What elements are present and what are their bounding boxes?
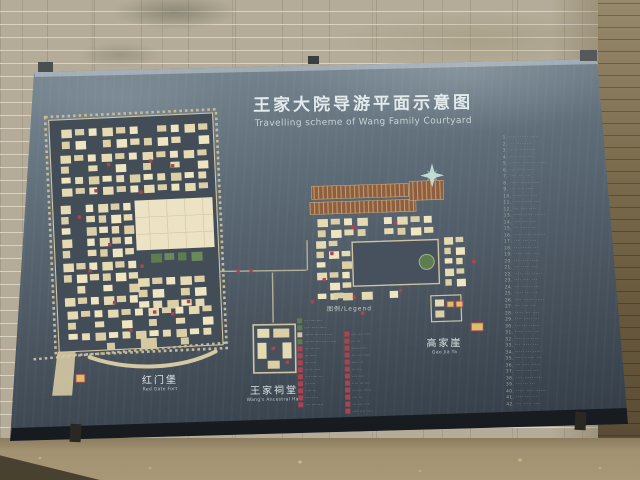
legend-item-text: ···· ··· bbox=[352, 394, 362, 399]
map-content: 王家大院导游平面示意图 Travelling scheme of Wang Fa… bbox=[0, 0, 640, 480]
legend-item-text: ···· ···· ····· bbox=[351, 331, 370, 336]
map-title: 王家大院导游平面示意图 bbox=[230, 88, 496, 117]
legend-item-text: ···· ··· ··· bbox=[304, 346, 319, 351]
mount-bracket-top-center bbox=[308, 56, 319, 64]
legend-item-text: ····· ······ bbox=[351, 345, 366, 350]
sign-board: 王家大院导游平面示意图 Travelling scheme of Wang Fa… bbox=[0, 0, 640, 480]
legend-swatch-icon bbox=[345, 353, 350, 358]
legend-item-text: ··· ··· ···· bbox=[305, 367, 320, 372]
legend-item-text: ···· ····· ··· bbox=[305, 374, 323, 379]
legend-swatch-icon bbox=[298, 368, 303, 373]
legend-swatch-icon bbox=[298, 375, 303, 380]
mount-bracket-top-right bbox=[580, 50, 597, 61]
legend-swatch-icon bbox=[297, 326, 302, 331]
legend-header: 图例/Legend bbox=[327, 303, 372, 313]
mount-tab-bottom-left bbox=[70, 424, 82, 443]
mount-tab-bottom-right bbox=[575, 412, 587, 431]
mount-bracket-top-left bbox=[38, 62, 53, 72]
legend-item-text: ··· ···· ······ bbox=[352, 387, 371, 392]
gao-jia-ya-en: Gao Jia Ya bbox=[415, 350, 475, 356]
legend-swatch-icon bbox=[298, 389, 303, 394]
legend-swatch-icon bbox=[345, 381, 350, 386]
legend-item-text: ····· ···· ····· bbox=[352, 408, 372, 413]
legend-swatch-icon bbox=[344, 346, 349, 351]
index-line: 42. ··· ····· ···· bbox=[506, 401, 601, 409]
legend-column-right: ···· ···· ····· ··· ··· ····· ······ ···… bbox=[344, 330, 405, 415]
gao-jia-ya-cn: 高家崖 bbox=[414, 334, 474, 350]
legend-swatch-icon bbox=[345, 388, 350, 393]
legend-swatch-icon bbox=[345, 409, 350, 414]
legend-swatch-icon bbox=[298, 403, 303, 408]
legend-item-text: ········ ···· ··· ·· ···· bbox=[304, 339, 336, 344]
legend-swatch-icon bbox=[297, 333, 302, 338]
legend-item-text: ···· ···· bbox=[305, 360, 317, 365]
round-pavilion bbox=[419, 254, 434, 269]
legend-swatch-icon bbox=[345, 395, 350, 400]
legend-swatch-icon bbox=[298, 354, 303, 359]
legend-item-text: ····· ··· bbox=[352, 359, 364, 364]
legend-item-text: ··· ··· bbox=[351, 338, 360, 343]
legend-swatch-icon bbox=[298, 396, 303, 401]
legend-item: ····· ···· ····· bbox=[345, 407, 405, 415]
red-gate-fort-en: Red Gate Fort bbox=[115, 387, 205, 393]
red-gate-fort-map bbox=[23, 109, 230, 359]
legend-item-text: ···· ····· bbox=[352, 373, 365, 378]
legend-item-text: ··· ····· ···· bbox=[352, 401, 370, 406]
legend-swatch-icon bbox=[344, 339, 349, 344]
legend-swatch-icon bbox=[298, 361, 303, 366]
photo-of-map-sign: 王家大院导游平面示意图 Travelling scheme of Wang Fa… bbox=[0, 0, 640, 480]
legend-swatch-icon bbox=[345, 374, 350, 379]
legend-item-text: ··· ····· ···· bbox=[304, 318, 322, 323]
dirt-ground bbox=[0, 438, 640, 480]
legend-item-text: ··· ·· ··· bbox=[305, 395, 318, 400]
legend-swatch-icon bbox=[297, 319, 302, 324]
red-gate-fort-cn: 红门堡 bbox=[115, 371, 205, 387]
legend-item-text: ····· ··· bbox=[305, 388, 317, 393]
legend-swatch-icon bbox=[345, 360, 350, 365]
legend-item-text: ··· ···· bbox=[305, 381, 315, 386]
legend-swatch-icon bbox=[297, 340, 302, 345]
legend-swatch-icon bbox=[344, 332, 349, 337]
label-red-gate-fort: 红门堡 Red Gate Fort bbox=[115, 371, 205, 393]
legend-swatch-icon bbox=[345, 367, 350, 372]
compass-icon bbox=[420, 163, 444, 187]
map-subtitle: Travelling scheme of Wang Family Courtya… bbox=[230, 116, 496, 130]
legend-item-text: ····· ··· ···· bbox=[352, 380, 370, 385]
legend-swatch-icon bbox=[298, 382, 303, 387]
legend-item-text: ····· ···· ······ bbox=[304, 325, 326, 330]
legend-item-text: ··· ···· bbox=[352, 366, 362, 371]
map-title-block: 王家大院导游平面示意图 Travelling scheme of Wang Fa… bbox=[230, 88, 497, 130]
legend-item-text: ···· ··· ····· bbox=[352, 352, 370, 357]
legend-item-text: ······· ····· ··· ···· bbox=[304, 332, 332, 337]
legend-item-text: ···· ···· ···· bbox=[305, 402, 323, 407]
label-gao-jia-ya: 高家崖 Gao Jia Ya bbox=[414, 334, 474, 356]
legend-item-text: ··· ····· bbox=[305, 353, 317, 358]
legend-swatch-icon bbox=[345, 402, 350, 407]
legend-swatch-icon bbox=[297, 347, 302, 352]
numbered-index-list: 1. ···· ······ ····2. ··· ····· ···3. ··… bbox=[503, 134, 602, 408]
